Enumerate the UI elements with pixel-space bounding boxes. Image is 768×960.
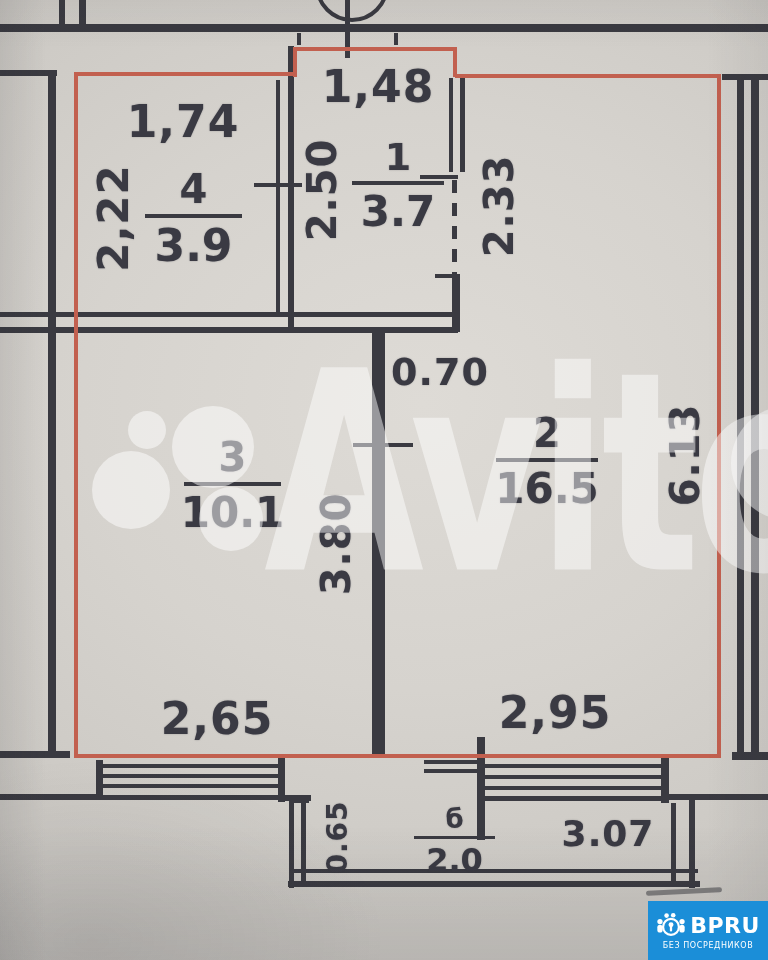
wall-bottomleft-horizontal: [0, 751, 70, 758]
room4-label: 4 3.9: [145, 164, 242, 271]
balcony-number: б: [445, 806, 463, 836]
dim-balcony-depth: 0.65: [321, 800, 354, 873]
wall-topleft-stub-1: [59, 0, 65, 26]
bpru-people-icon: [656, 912, 686, 940]
dim-tick-top-1: [297, 33, 301, 45]
dim-balcony-length: 3.07: [562, 813, 655, 854]
window2-line-2: [485, 775, 661, 779]
wall-room1-right-upper-a: [449, 78, 453, 172]
boundary-top-right: [455, 74, 721, 78]
dim-room4-depth: 2,22: [89, 164, 138, 272]
wall-room4-room1-inner: [276, 80, 280, 314]
wall-room1-right-dashed-opening: [452, 180, 457, 274]
window2-line-4: [485, 796, 661, 801]
room1-area: 3.7: [361, 185, 435, 236]
wall-right-exterior-outer: [751, 76, 759, 755]
boundary-bottom: [74, 754, 721, 758]
room2-label: 2 16.5: [496, 410, 598, 513]
wall-right-exterior-inner: [737, 76, 744, 755]
boundary-left: [74, 72, 78, 758]
window1-line-1: [103, 764, 278, 768]
bpru-brand-text: BPRU: [690, 913, 760, 938]
floor-plan-drawing: 1,74 2,22 1,48 2.50 2.33 0.70 3.80 6.13 …: [0, 0, 768, 960]
wall-topleft-stub-2: [79, 0, 86, 26]
room1-label: 1 3.7: [352, 135, 444, 236]
room3-label: 3 10.1: [184, 432, 281, 537]
room4-area: 3.9: [155, 218, 233, 271]
window1-jamb-left: [96, 760, 103, 800]
balcony-wall-left-cap: [289, 799, 309, 803]
floor-plan-scan: 1,74 2,22 1,48 2.50 2.33 0.70 3.80 6.13 …: [0, 0, 768, 960]
window2-line-1: [485, 764, 661, 768]
window1-line-4: [103, 795, 278, 800]
room2-number: 2: [533, 410, 561, 458]
balcony-wall-right-outer: [689, 799, 695, 888]
wall-left-exterior: [48, 70, 56, 754]
dim-wall-stub: 0.70: [391, 350, 489, 394]
wall-room1-right-upper-b: [460, 78, 465, 172]
boundary-right: [717, 74, 721, 758]
dim-room4-width: 1,74: [127, 96, 240, 147]
balcony-door-sill-2: [424, 769, 478, 773]
wall-room1-right-lower-flange: [435, 274, 456, 278]
boundary-top-left: [76, 72, 295, 76]
wall-mid-horizontal-bottom: [0, 327, 458, 333]
wall-room1-right-lower: [452, 274, 460, 332]
balcony-door-sill-1: [424, 760, 478, 764]
wall-bottomright-horizontal: [732, 752, 768, 760]
dim-hall-opening: 2.33: [476, 155, 522, 258]
balcony-wall-right-inner: [671, 803, 676, 883]
bpru-tagline: БЕЗ ПОСРЕДНИКОВ: [663, 941, 754, 950]
axis-marker-circle: [315, 0, 389, 22]
balcony-wall-bottom-outer: [288, 881, 700, 887]
wall-topright-horizontal: [722, 74, 768, 80]
dim-tick-250: [254, 183, 302, 187]
dim-room2-depth: 6.13: [662, 404, 708, 507]
balcony-area: 2.0: [426, 839, 483, 879]
wall-partition-room3-room2: [372, 330, 385, 757]
window2-line-3: [485, 786, 661, 790]
dim-tick-top-2: [394, 33, 398, 45]
wall-mid-horizontal-top: [0, 312, 457, 317]
wall-room4-room1-outer: [288, 46, 294, 332]
dim-room2-window: 2,95: [499, 687, 612, 738]
room4-number: 4: [180, 164, 208, 214]
bpru-logo: BPRU БЕЗ ПОСРЕДНИКОВ: [648, 901, 768, 960]
dim-tick-partition: [353, 443, 413, 447]
balcony-label: б 2.0: [414, 806, 495, 879]
balcony-wall-left-outer: [289, 799, 294, 888]
bpru-logo-row: BPRU: [656, 912, 760, 940]
dim-partition-length: 3.80: [313, 493, 359, 596]
window1-line-2: [103, 774, 278, 778]
room3-number: 3: [219, 432, 247, 482]
dim-room3-window: 2,65: [161, 693, 274, 744]
room3-area: 10.1: [181, 486, 285, 537]
room2-area: 16.5: [495, 462, 599, 513]
window1-line-3: [103, 784, 278, 788]
boundary-room1-top: [293, 47, 457, 51]
boundary-room1-right: [453, 47, 457, 77]
sill-bottomright: [667, 794, 768, 800]
wall-top-exterior: [0, 24, 768, 32]
sill-bottomleft: [0, 794, 100, 800]
dim-room1-width: 1,48: [322, 61, 435, 112]
room1-number: 1: [385, 135, 411, 181]
dim-room1-depth: 2.50: [299, 139, 345, 242]
